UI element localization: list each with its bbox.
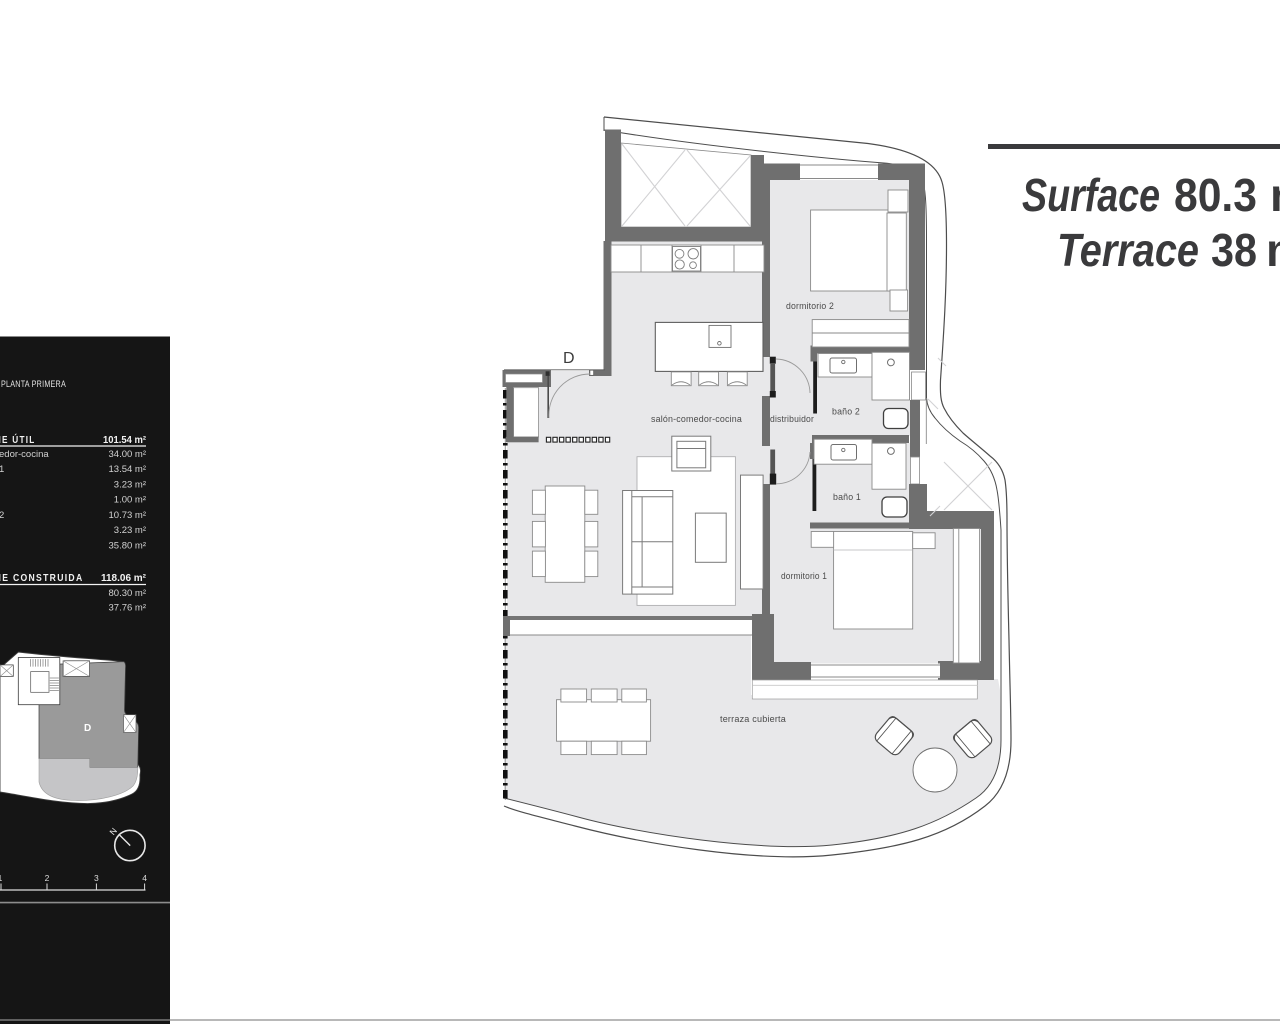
svg-text:1: 1 <box>0 464 4 475</box>
svg-text:edor-cocina: edor-cocina <box>0 449 49 460</box>
svg-text:baño 1: baño 1 <box>833 492 861 503</box>
svg-text:dormitorio 2: dormitorio 2 <box>786 301 834 312</box>
svg-text:1: 1 <box>0 873 3 883</box>
svg-text:D: D <box>84 723 91 734</box>
svg-text:1.00 m²: 1.00 m² <box>114 495 146 506</box>
svg-text:4: 4 <box>142 873 147 883</box>
svg-text:101.54 m²: 101.54 m² <box>103 434 146 446</box>
svg-text:2: 2 <box>0 510 4 521</box>
svg-text:37.76 m²: 37.76 m² <box>109 603 147 614</box>
svg-text:3: 3 <box>94 873 99 883</box>
svg-text:terraza cubierta: terraza cubierta <box>720 714 786 725</box>
svg-text:118.06 m²: 118.06 m² <box>101 572 146 584</box>
svg-text:2: 2 <box>45 873 50 883</box>
svg-text:PLANTA PRIMERA: PLANTA PRIMERA <box>1 379 66 389</box>
svg-text:baño 2: baño 2 <box>832 407 860 418</box>
svg-text:80.30 m²: 80.30 m² <box>109 588 147 599</box>
svg-text:salón-comedor-cocina: salón-comedor-cocina <box>651 414 742 425</box>
svg-text:Surface80.3m²: Surface80.3m² <box>1022 169 1280 221</box>
svg-text:D: D <box>563 350 575 367</box>
svg-text:IE CONSTRUIDA: IE CONSTRUIDA <box>0 572 84 584</box>
svg-text:10.73 m²: 10.73 m² <box>109 510 147 521</box>
svg-text:35.80 m²: 35.80 m² <box>109 541 147 552</box>
svg-text:3.23 m²: 3.23 m² <box>114 525 146 536</box>
svg-text:Terrace38m²: Terrace38m² <box>1057 224 1280 276</box>
svg-text:distribuidor: distribuidor <box>770 414 815 425</box>
svg-text:dormitorio 1: dormitorio 1 <box>781 571 827 582</box>
svg-text:34.00 m²: 34.00 m² <box>109 449 147 460</box>
svg-text:13.54 m²: 13.54 m² <box>109 464 147 475</box>
svg-text:3.23 m²: 3.23 m² <box>114 479 146 490</box>
svg-text:IE ÚTIL: IE ÚTIL <box>0 433 36 446</box>
